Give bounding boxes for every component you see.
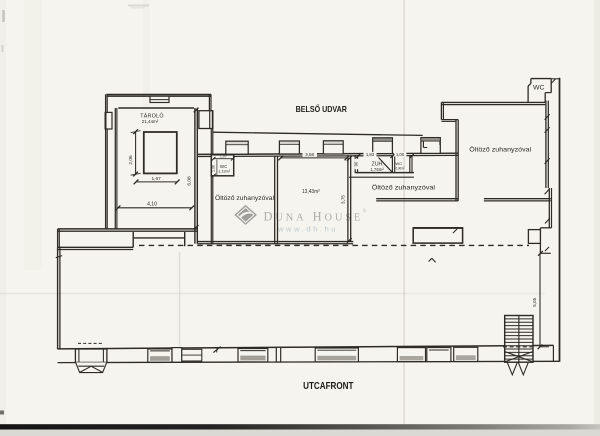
svg-text:1,00: 1,00 bbox=[396, 152, 405, 157]
svg-text:WC: WC bbox=[395, 161, 402, 166]
svg-text:UTCAFRONT: UTCAFRONT bbox=[303, 381, 354, 392]
svg-text:4,10: 4,10 bbox=[147, 202, 157, 208]
svg-text:2,06: 2,06 bbox=[128, 155, 134, 165]
svg-text:1,07: 1,07 bbox=[220, 155, 227, 159]
svg-text:3,58: 3,58 bbox=[305, 152, 314, 157]
svg-text:®: ® bbox=[363, 209, 367, 215]
svg-text:Öltöző zuhanyzóval: Öltöző zuhanyzóval bbox=[469, 146, 531, 154]
svg-text:Öltöző zuhanyzóval: Öltöző zuhanyzóval bbox=[372, 183, 436, 191]
svg-text:WC: WC bbox=[220, 164, 227, 169]
svg-text:1,06: 1,06 bbox=[212, 165, 216, 172]
svg-text:21,44m²: 21,44m² bbox=[142, 119, 159, 124]
svg-text:www.dh.hu: www.dh.hu bbox=[277, 224, 338, 233]
svg-text:1,13m²: 1,13m² bbox=[218, 170, 231, 174]
svg-text:WC: WC bbox=[533, 84, 545, 91]
svg-text:3,75: 3,75 bbox=[341, 195, 346, 204]
svg-text:BELSŐ UDVAR: BELSŐ UDVAR bbox=[296, 103, 347, 114]
svg-text:1,83: 1,83 bbox=[366, 152, 375, 157]
svg-text:5,05: 5,05 bbox=[532, 297, 537, 306]
svg-text:1,76m²: 1,76m² bbox=[370, 167, 384, 172]
svg-text:Öltöző zuhanyzóval: Öltöző zuhanyzóval bbox=[215, 194, 274, 202]
svg-text:6,08: 6,08 bbox=[186, 176, 192, 186]
svg-text:1,67: 1,67 bbox=[152, 176, 162, 182]
svg-text:13,43m²: 13,43m² bbox=[302, 189, 320, 195]
svg-text:96: 96 bbox=[353, 161, 358, 166]
svg-text:0,96m²: 0,96m² bbox=[396, 167, 405, 171]
